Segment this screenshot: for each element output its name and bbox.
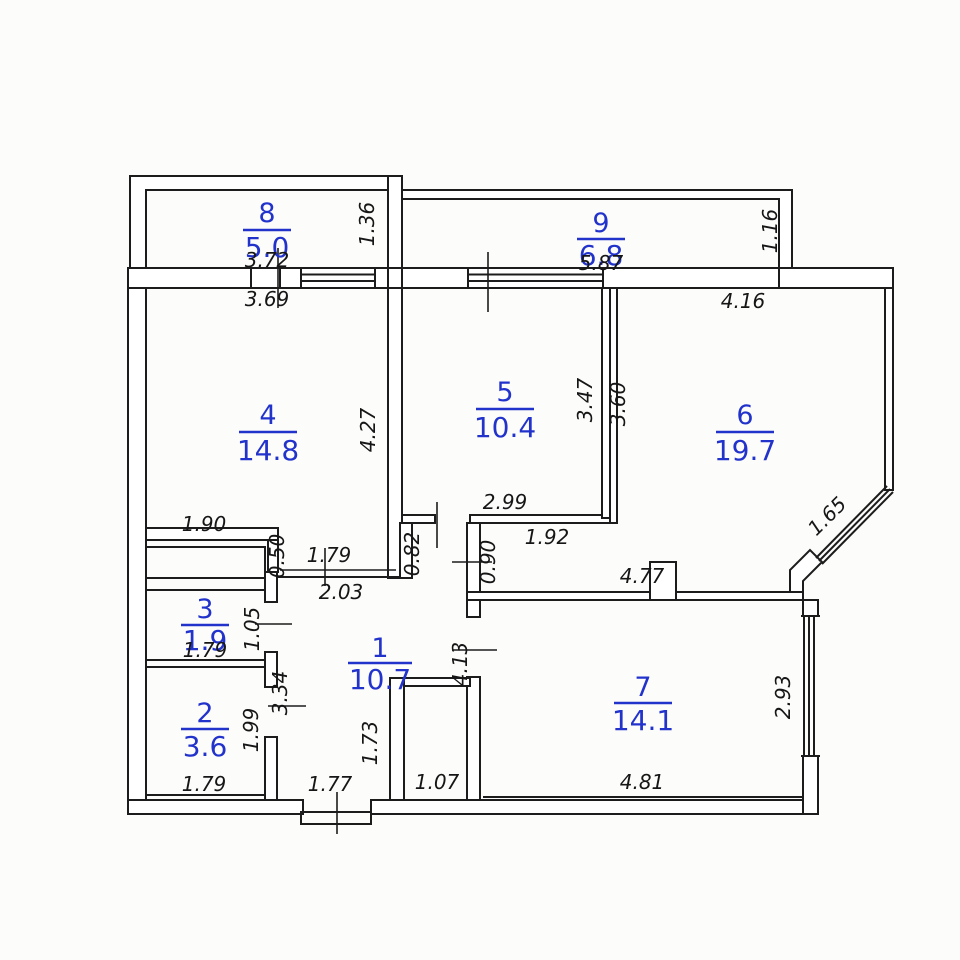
dim-1-99: 1.99 [239,708,263,753]
room-2-area: 3.6 [183,730,228,763]
room-5-number: 5 [496,377,513,408]
room-label-2: 2 3.6 [181,698,229,763]
dim-4-16: 4.16 [721,289,766,313]
room-label-5: 5 10.4 [474,377,536,444]
wall-corridor-stub [390,678,404,800]
room-label-7: 7 14.1 [612,672,674,737]
dim-4-27: 4.27 [356,407,380,452]
wall-bottom-left [128,800,303,814]
wall-room8-right [388,176,402,268]
closet-box [146,547,265,578]
dimension-labels: 3.72 3.69 1.36 5.87 1.16 4.16 4.27 3.47 … [182,202,852,796]
room-1-area: 10.7 [349,663,411,696]
room-9-number: 9 [592,208,609,239]
dim-2-99: 2.99 [483,490,528,514]
dim-1-73: 1.73 [358,721,382,766]
dim-2-03: 2.03 [319,580,364,604]
dim-0-90: 0.90 [476,540,500,585]
dim-1-79-room2: 1.79 [182,772,227,796]
dim-1-79-room3: 1.79 [183,638,228,662]
wall-hall-c [265,737,277,800]
dim-2-93: 2.93 [771,675,795,720]
dim-1-90: 1.90 [182,512,227,536]
room-4-number: 4 [259,400,276,431]
dim-1-07: 1.07 [415,770,460,794]
room-label-4: 4 14.8 [237,400,299,467]
entrance-threshold [301,812,371,824]
room-1-number: 1 [371,633,388,664]
dim-4-77: 4.77 [620,564,665,588]
room-7-number: 7 [634,672,651,703]
dim-3-34: 3.34 [268,671,292,716]
dim-1-92: 1.92 [525,525,570,549]
dim-3-72: 3.72 [245,248,290,272]
room-5-area: 10.4 [474,411,536,444]
dim-0-50: 0.50 [265,534,289,579]
wall-room5-bottom-b [470,515,617,523]
floorplan-page: 1 10.7 2 3.6 3 1.9 4 14.8 5 10.4 6 19.7 [0,0,960,960]
dim-1-77: 1.77 [308,772,353,796]
wall-room7-left-lower [467,677,480,800]
dim-1-05: 1.05 [240,607,264,652]
dim-1-65: 1.65 [803,492,851,540]
room-4-area: 14.8 [237,434,299,467]
wall-room7-top [467,592,803,600]
room-label-1: 1 10.7 [348,633,412,696]
room-7-area: 14.1 [612,704,674,737]
dim-1-79-door: 1.79 [307,543,352,567]
room-8-number: 8 [258,198,275,229]
dim-3-47: 3.47 [573,377,597,422]
dim-3-69: 3.69 [245,287,290,311]
dim-1-16: 1.16 [758,209,782,254]
dim-4-81: 4.81 [620,770,665,794]
wall-room6-right [885,288,893,490]
wall-left-outer [128,288,146,800]
wall-room5-bottom-a [402,515,435,523]
wall-bottom-right [371,800,818,814]
dim-4-13: 4.13 [448,642,472,687]
room-label-6: 6 19.7 [714,400,776,467]
floorplan-drawing: 1 10.7 2 3.6 3 1.9 4 14.8 5 10.4 6 19.7 [0,0,960,960]
wall-room7-left-upper [467,600,480,617]
room-2-number: 2 [196,698,213,729]
dim-5-87: 5.87 [579,251,624,275]
room-3-number: 3 [196,594,213,625]
room-6-number: 6 [736,400,753,431]
room-6-area: 19.7 [714,434,776,467]
dim-0-82: 0.82 [400,532,424,577]
dim-3-60: 3.60 [606,382,630,427]
dim-1-36: 1.36 [355,202,379,247]
